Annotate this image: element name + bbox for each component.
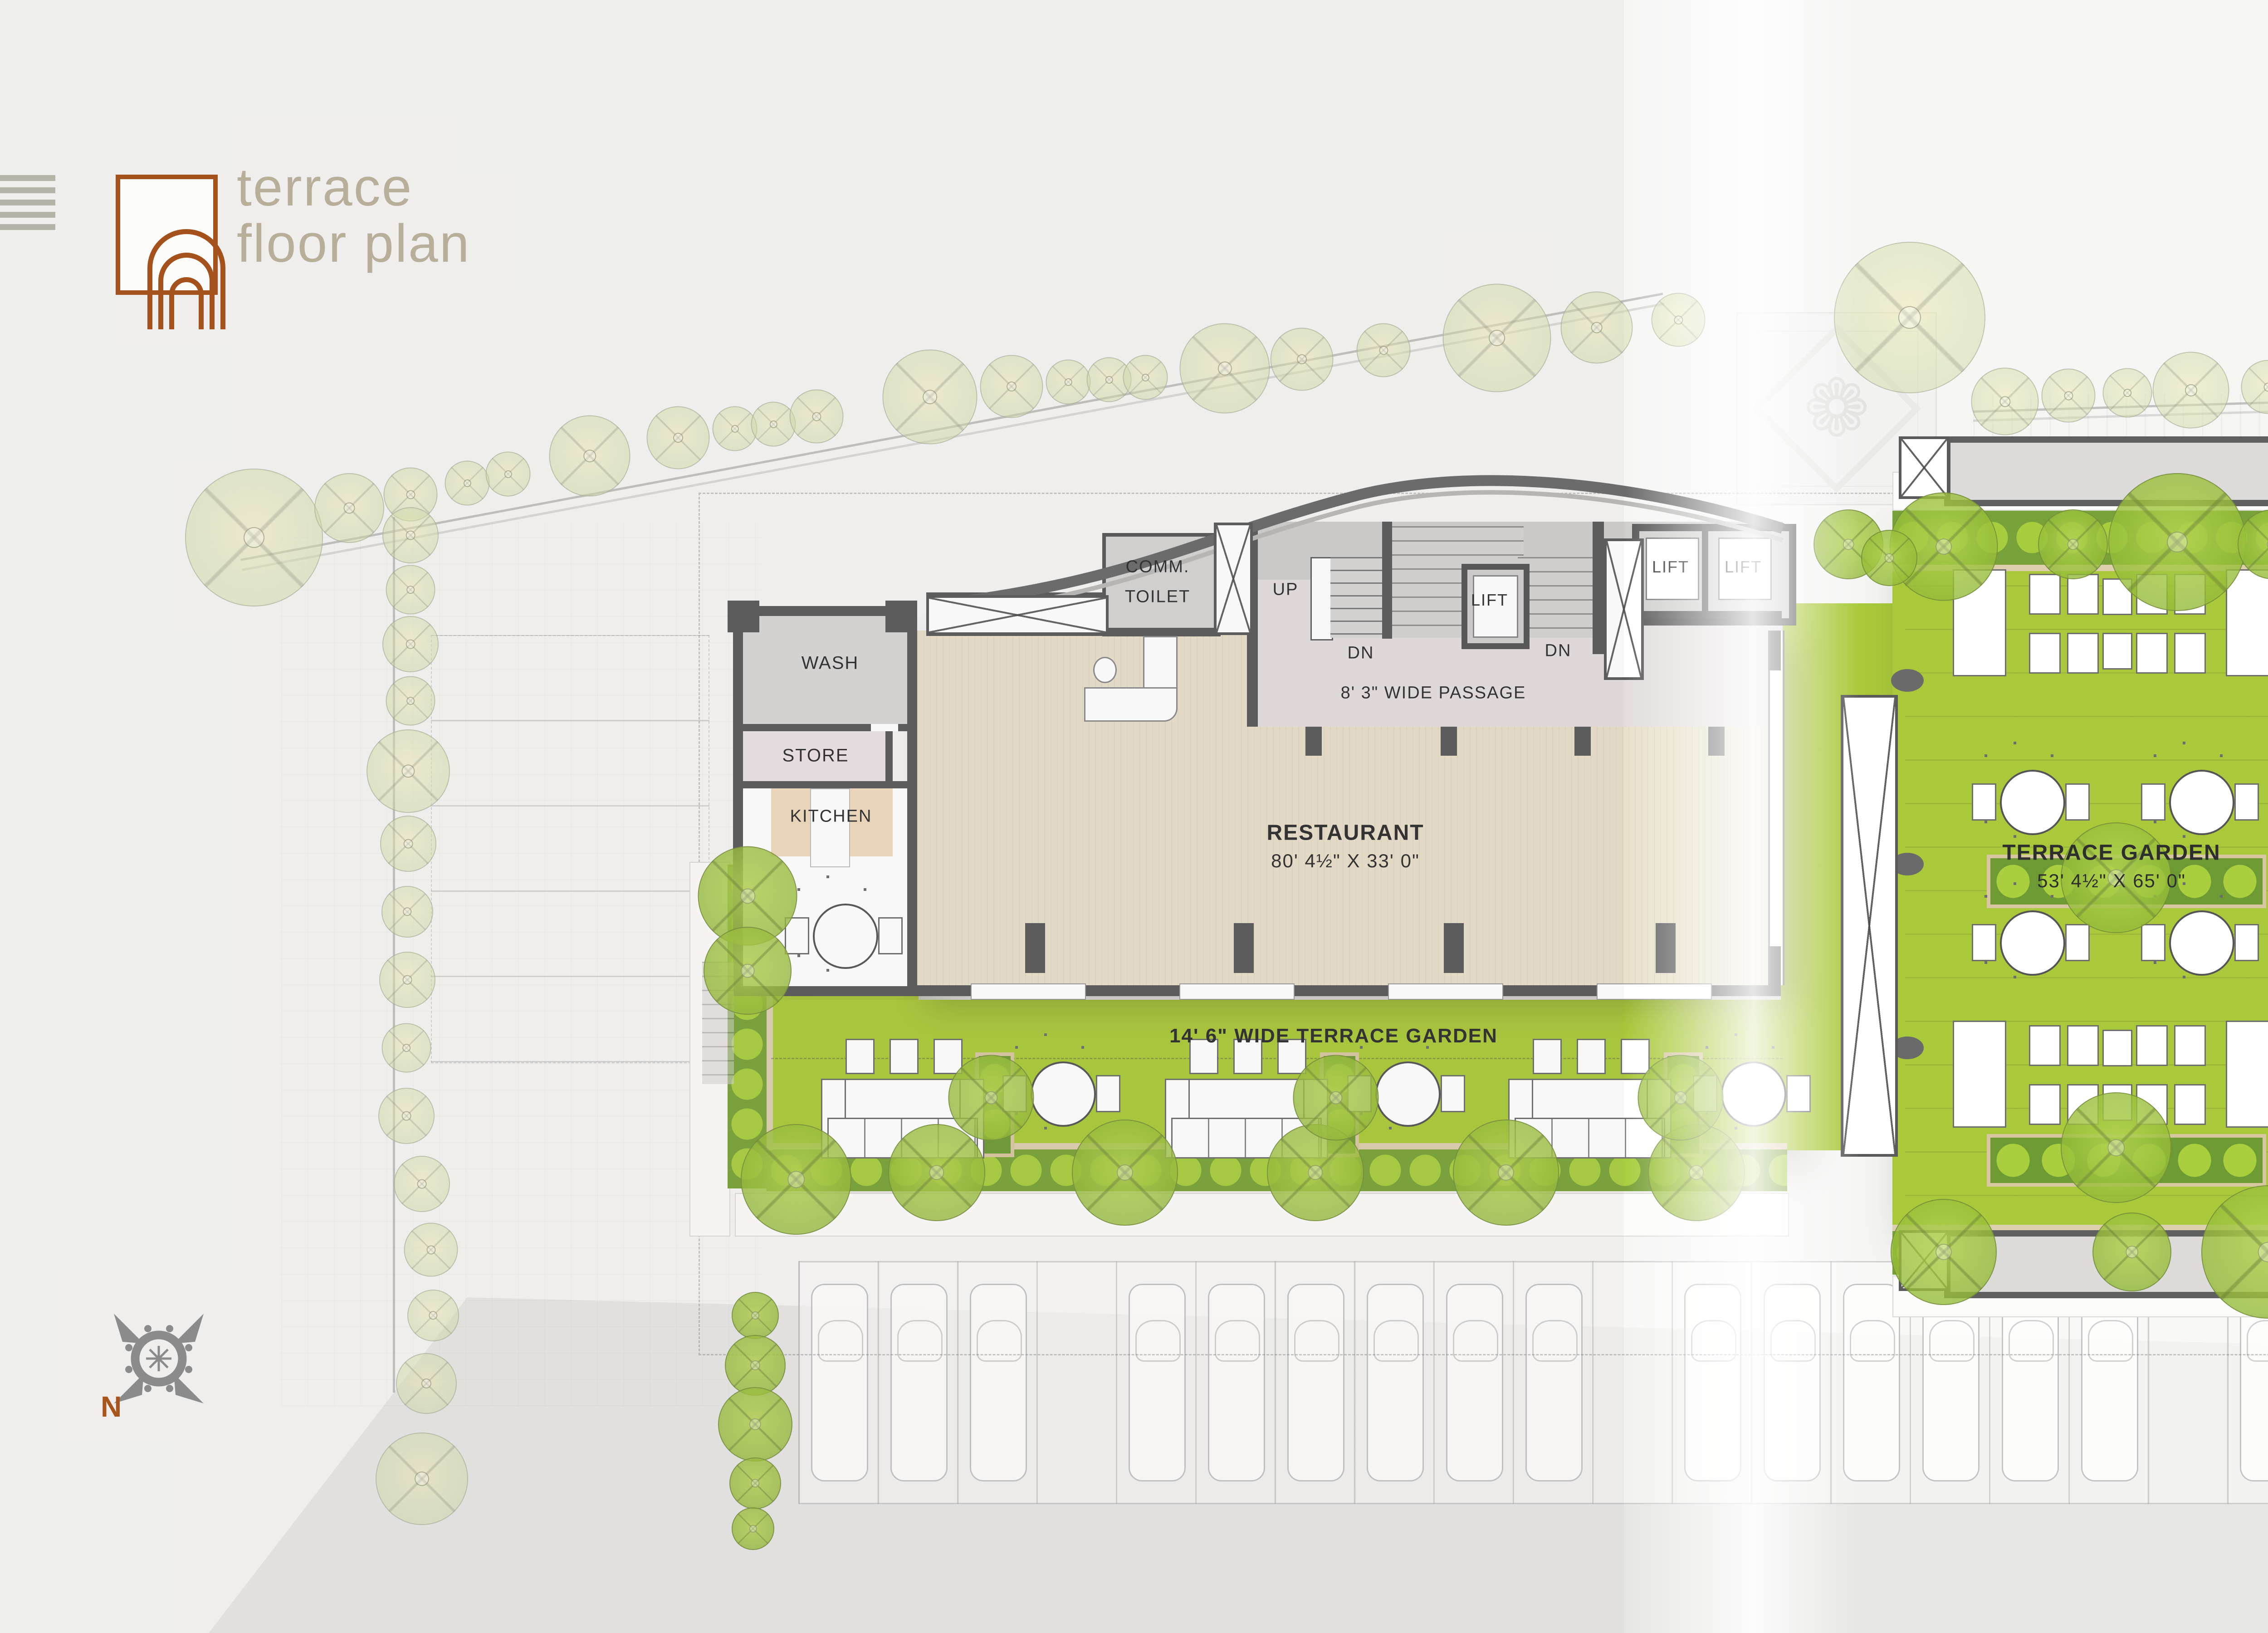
lounge-sofa <box>1953 1021 2006 1128</box>
store-label: STORE <box>782 746 849 766</box>
lounge-sofa <box>2226 569 2268 676</box>
passage-column <box>1441 727 1457 756</box>
lounge-seat <box>2174 1025 2206 1066</box>
chair-diamond <box>1015 1046 1018 1049</box>
lounge-seat <box>2067 574 2099 615</box>
chair <box>2141 924 2165 961</box>
stool <box>1577 1039 1606 1074</box>
round-table <box>2169 770 2234 835</box>
chair-diamond <box>1984 961 1987 964</box>
chair <box>878 917 903 954</box>
chair-diamond <box>797 888 800 891</box>
chair <box>2014 976 2016 978</box>
chair-diamond <box>2051 895 2053 898</box>
wall <box>1768 946 1781 996</box>
stool <box>1533 1039 1562 1074</box>
passage-column <box>1574 727 1591 756</box>
chair <box>2183 742 2185 744</box>
comm-toilet-label: COMM. <box>1126 557 1190 577</box>
reception-counter <box>1084 687 1178 722</box>
chair <box>2014 882 2016 885</box>
brand-logo <box>116 175 218 295</box>
lounge-seat <box>2029 1084 2061 1125</box>
round-table <box>2000 910 2065 976</box>
lower-garden-label: 14' 6" WIDE TERRACE GARDEN <box>1169 1025 1498 1047</box>
chair <box>1389 1127 1392 1129</box>
column <box>1234 923 1254 973</box>
chair <box>1441 1075 1465 1112</box>
lift-label: LIFT <box>1725 557 1762 577</box>
restaurant-label: RESTAURANT <box>1266 821 1424 846</box>
round-table <box>2000 770 2065 835</box>
low-table <box>1188 1079 1305 1120</box>
lounge-seat <box>2067 633 2099 674</box>
round-table <box>2169 910 2234 976</box>
round-table <box>813 904 878 969</box>
window <box>1179 983 1295 1000</box>
chair <box>2183 976 2185 978</box>
round-table <box>1721 1061 1786 1127</box>
round-table <box>1375 1061 1441 1127</box>
passage-column <box>1708 727 1725 756</box>
lounge-seat <box>2029 574 2061 615</box>
chair <box>1972 783 1996 821</box>
reception-stool <box>1093 657 1117 683</box>
lift-label: LIFT <box>1471 591 1508 610</box>
wall <box>1768 631 1781 670</box>
up-label: UP <box>1273 580 1299 600</box>
round-table <box>1031 1061 1096 1127</box>
terrace-garden-dims: 53' 4½" X 65' 0" <box>2037 870 2186 892</box>
chair <box>826 969 829 972</box>
page-title: terrace floor plan <box>237 160 470 272</box>
chair <box>2183 835 2185 838</box>
passage-column <box>1305 727 1322 756</box>
chair <box>2014 742 2016 744</box>
page-title-line1: terrace <box>237 160 470 216</box>
compass-rose: N <box>91 1291 227 1427</box>
lift-label: LIFT <box>1652 557 1689 577</box>
chair <box>1972 924 1996 961</box>
window <box>1597 983 1712 1000</box>
stool <box>890 1039 919 1074</box>
column <box>1656 923 1676 973</box>
kitchen-label: KITCHEN <box>790 807 872 826</box>
passage-label: 8' 3" WIDE PASSAGE <box>1341 684 1526 703</box>
window <box>971 983 1086 1000</box>
lounge-seat <box>2174 1084 2206 1125</box>
chair-diamond <box>864 888 866 891</box>
dn-label: DN <box>1545 641 1572 661</box>
lounge-seat <box>2136 633 2168 674</box>
stool <box>934 1039 963 1074</box>
terrace-floor-plan-sheet: ❁ <box>0 0 2268 1633</box>
walkway-bottom <box>735 1193 1789 1237</box>
restaurant-dims: 80' 4½" X 33' 0" <box>1271 850 1420 872</box>
chair-diamond <box>1984 895 1987 898</box>
chair <box>1096 1075 1120 1112</box>
lounge-sofa <box>2226 1021 2268 1128</box>
wall <box>743 781 907 788</box>
stool <box>1621 1039 1650 1074</box>
lounge-seat <box>2029 633 2061 674</box>
lounge-seat <box>2136 1025 2168 1066</box>
lounge-seat <box>2029 1025 2061 1066</box>
dn-label: DN <box>1348 644 1374 663</box>
lounge-table <box>2102 633 2132 670</box>
north-label: N <box>101 1390 122 1423</box>
chair <box>2234 924 2259 961</box>
low-table <box>1532 1079 1648 1120</box>
lounge-seat <box>2174 633 2206 674</box>
lounge-table <box>2102 1030 2132 1066</box>
wall <box>885 731 893 781</box>
chair <box>2065 924 2090 961</box>
chair-diamond <box>2051 754 2053 757</box>
chair <box>1044 1127 1047 1129</box>
chair-diamond <box>2154 821 2156 823</box>
chair <box>1044 1033 1047 1036</box>
chair-diamond <box>1984 821 1987 823</box>
chair-diamond <box>2220 895 2223 898</box>
wall <box>907 606 917 996</box>
chair-diamond <box>1081 1046 1084 1049</box>
wash-label: WASH <box>802 653 859 674</box>
stool <box>846 1039 875 1074</box>
parking-bays-left <box>431 635 709 1063</box>
chair <box>826 875 829 878</box>
chair <box>2014 835 2016 838</box>
chair <box>2065 783 2090 821</box>
chair <box>2234 783 2259 821</box>
kitchen-counter <box>810 788 850 867</box>
chair-diamond <box>797 954 800 957</box>
chair <box>1786 1075 1811 1112</box>
chair-diamond <box>1984 754 1987 757</box>
chair-diamond <box>2220 754 2223 757</box>
low-table <box>845 1079 961 1120</box>
column <box>1025 923 1045 973</box>
column <box>1444 923 1464 973</box>
logo-arch-icon <box>169 277 204 329</box>
chair-diamond <box>2154 754 2156 757</box>
window <box>1388 983 1503 1000</box>
lounge-seat <box>2067 1025 2099 1066</box>
chair-diamond <box>1706 1046 1708 1049</box>
chair <box>1735 1127 1737 1129</box>
menu-lines-icon <box>0 175 55 236</box>
corner-column <box>728 601 759 632</box>
round-dining-table-set <box>785 875 903 993</box>
terrace-garden-label: TERRACE GARDEN <box>2002 841 2220 865</box>
chair <box>2141 783 2165 821</box>
chair-diamond <box>2154 961 2156 964</box>
chair-diamond <box>1772 1046 1774 1049</box>
chair <box>1735 1033 1737 1036</box>
comm-toilet-label: TOILET <box>1125 587 1190 607</box>
door-gap <box>871 724 898 731</box>
page-title-line2: floor plan <box>237 216 470 272</box>
glazed-facade <box>1768 631 1784 985</box>
